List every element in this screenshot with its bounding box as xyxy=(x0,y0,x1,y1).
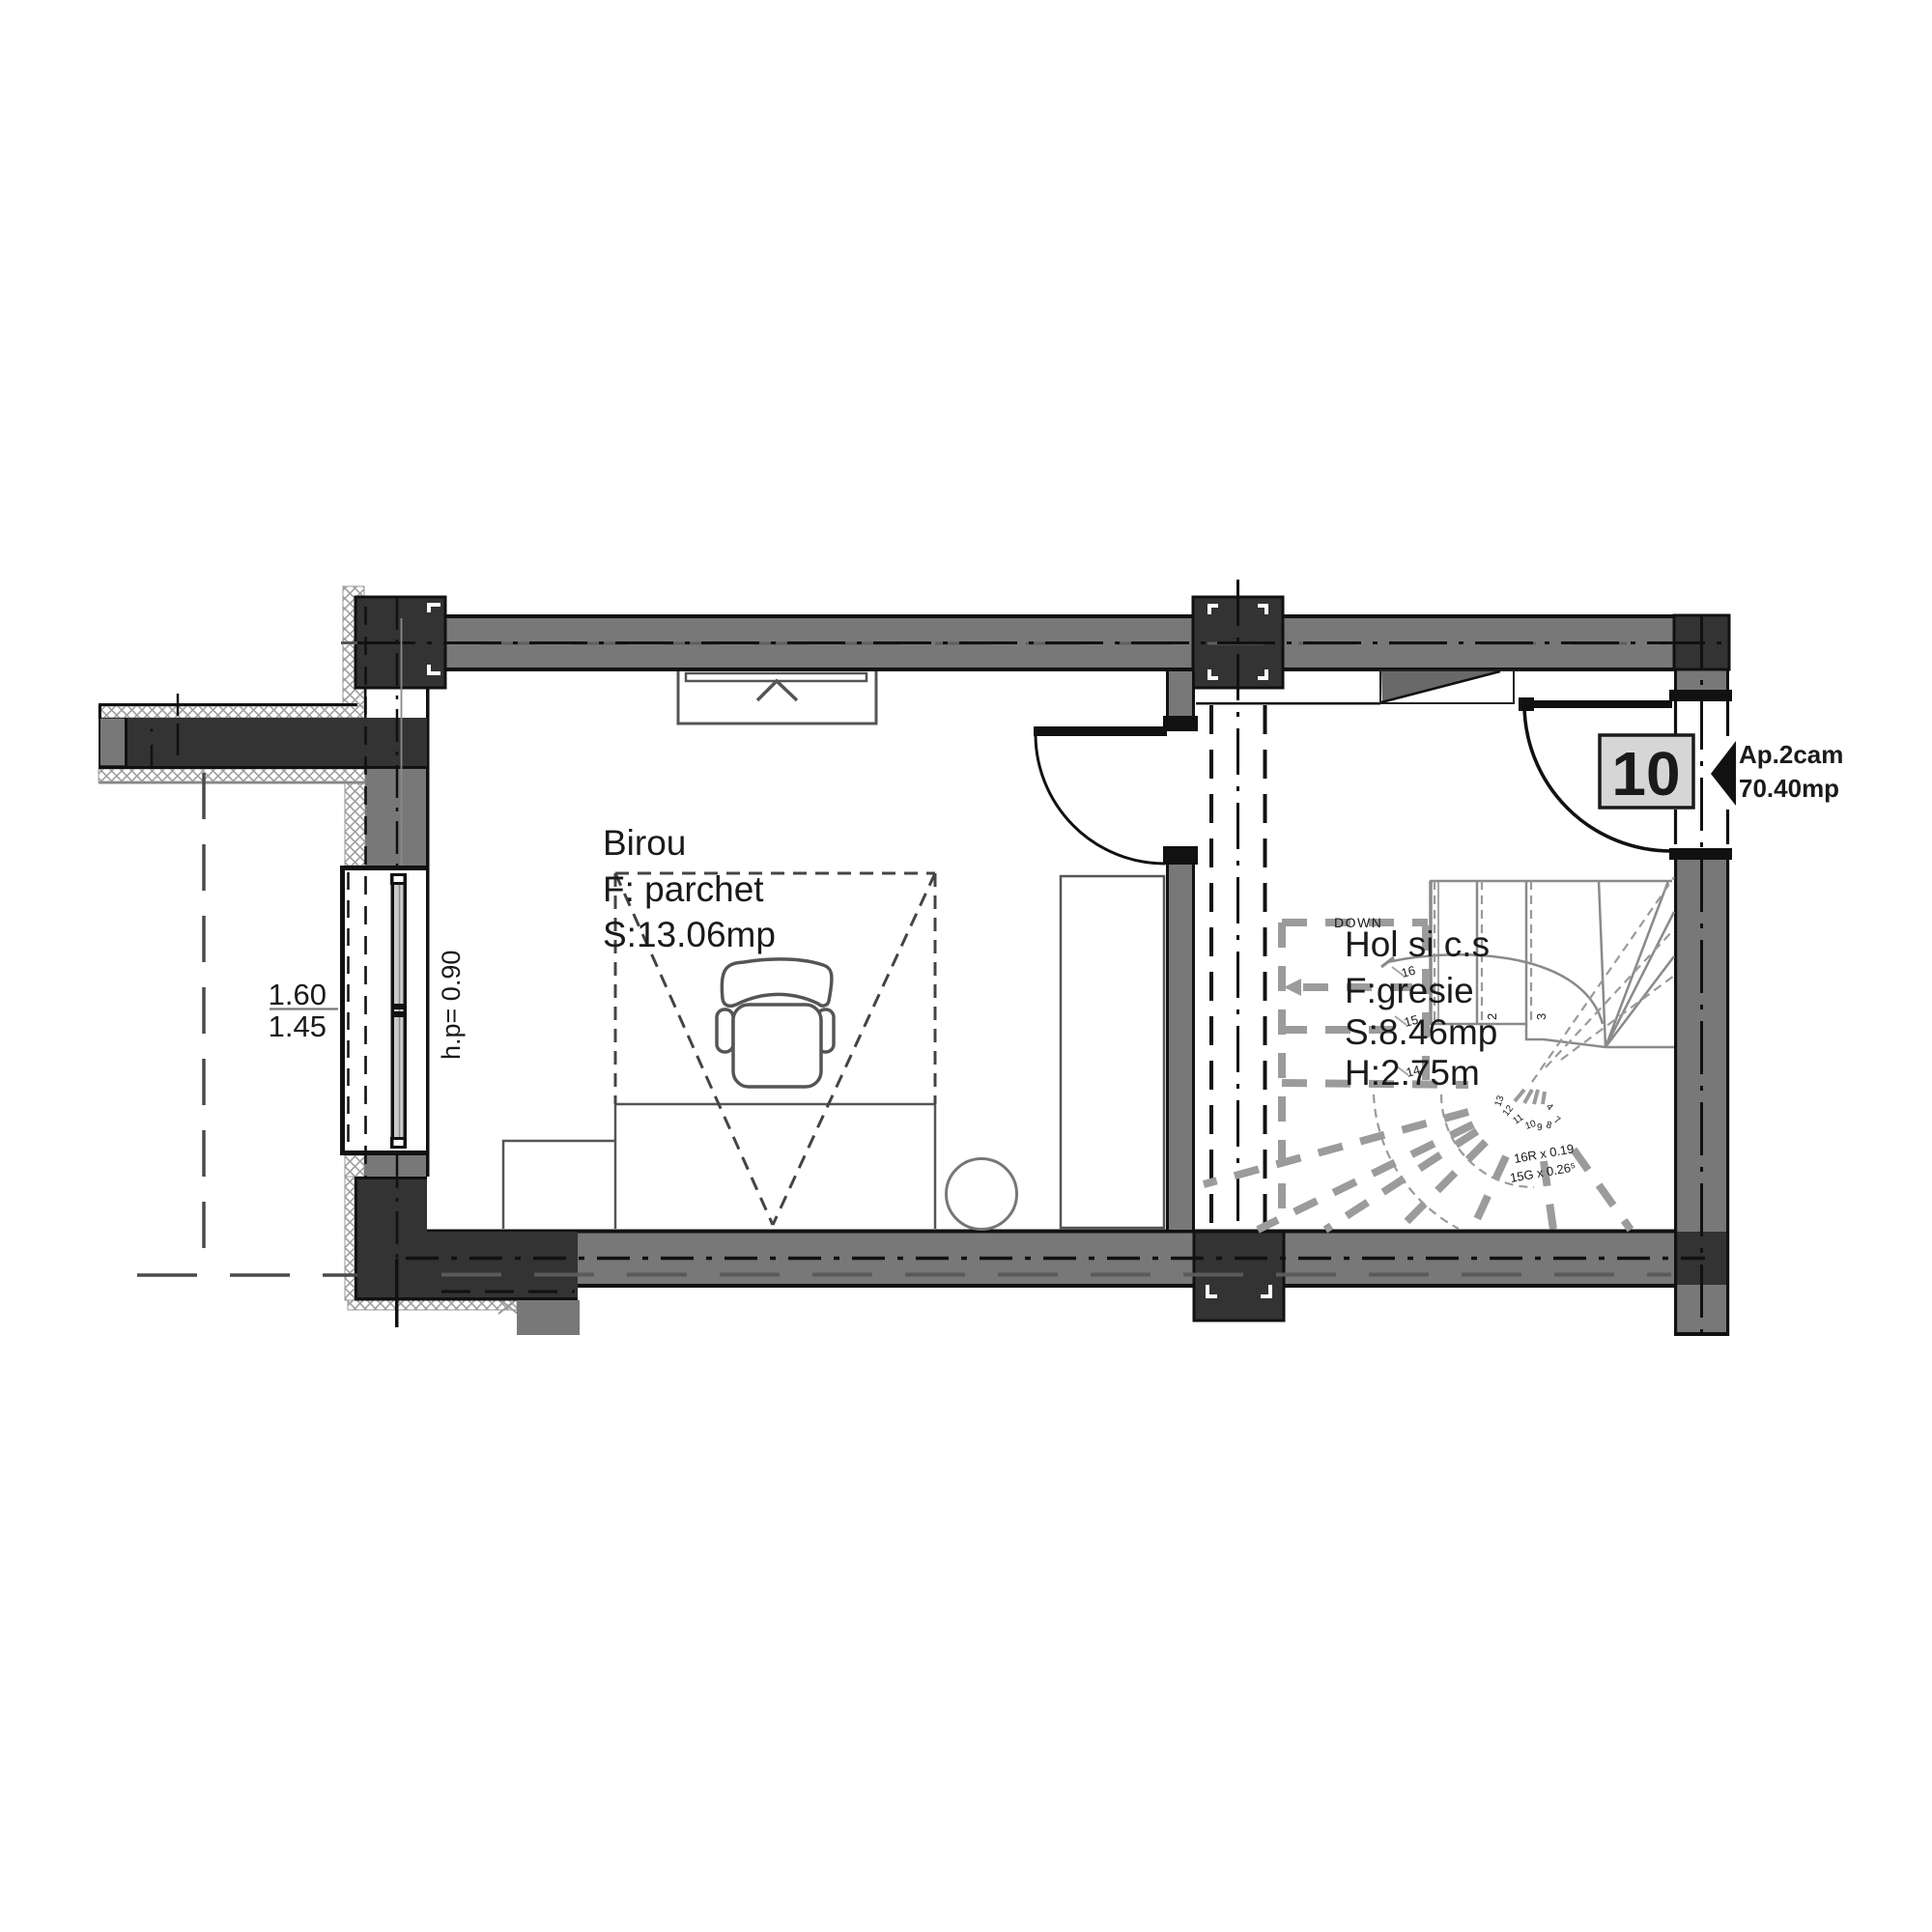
svg-text:70.40mp: 70.40mp xyxy=(1739,774,1839,803)
svg-text:3: 3 xyxy=(1534,1013,1548,1020)
svg-text:Ap.2cam: Ap.2cam xyxy=(1739,740,1843,769)
svg-text:Hol si c.s: Hol si c.s xyxy=(1345,924,1490,964)
svg-text:H:2.75m: H:2.75m xyxy=(1345,1053,1480,1093)
svg-text:1.60: 1.60 xyxy=(269,978,327,1011)
svg-text:9: 9 xyxy=(1537,1122,1543,1133)
svg-text:F: parchet: F: parchet xyxy=(603,869,764,909)
svg-text:F:gresie: F:gresie xyxy=(1345,971,1474,1010)
svg-text:S:8.46mp: S:8.46mp xyxy=(1345,1012,1497,1052)
svg-text:1.45: 1.45 xyxy=(269,1009,327,1043)
svg-text:h.p= 0.90: h.p= 0.90 xyxy=(437,951,466,1060)
svg-text:S:13.06mp: S:13.06mp xyxy=(603,915,776,954)
svg-text:Birou: Birou xyxy=(603,823,686,863)
svg-text:10: 10 xyxy=(1611,739,1680,809)
